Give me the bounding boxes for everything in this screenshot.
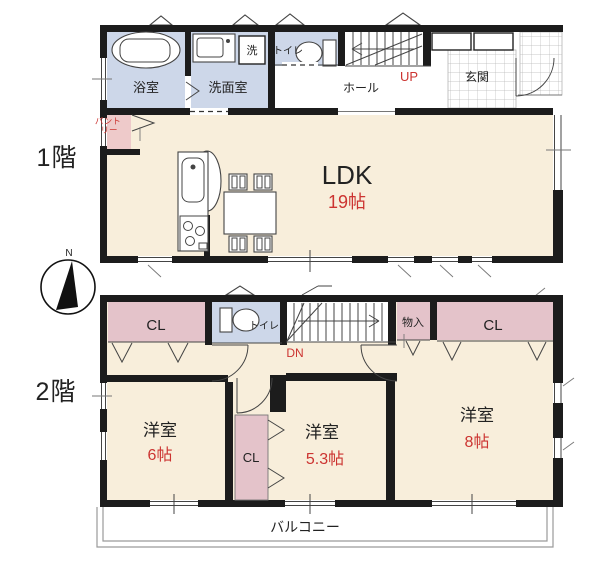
bedroom2-label: 洋室	[305, 423, 339, 442]
compass: N	[41, 248, 95, 314]
toilet2-label: トイレ	[249, 321, 279, 332]
washbasin-fixture	[193, 34, 235, 62]
closet-left-label: CL	[146, 317, 165, 334]
bedroom2-size-label: 5.3帖	[306, 450, 344, 468]
floorplan-image: 1階 浴室 洗面室 洗 トイレ ホール UP 玄関 パント リー LDK 19帖…	[0, 0, 600, 571]
bedroom3-size-label: 8帖	[465, 433, 490, 451]
floorplan-svg: 1階 浴室 洗面室 洗 トイレ ホール UP 玄関 パント リー LDK 19帖…	[0, 0, 600, 571]
storage-label: 物入	[402, 315, 424, 329]
ldk-label: LDK	[322, 160, 373, 190]
bedroom1-size-label: 6帖	[148, 446, 173, 464]
toilet1-label: トイレ	[273, 46, 303, 57]
closet-right-label: CL	[483, 317, 502, 334]
bathtub-fixture	[112, 32, 180, 68]
floor1-label: 1階	[37, 144, 78, 172]
entrance-label: 玄関	[465, 69, 489, 84]
closet-mid-label: CL	[243, 450, 260, 465]
compass-north-label: N	[65, 248, 72, 259]
stairs-down-label: DN	[286, 346, 303, 360]
hall-label: ホール	[343, 81, 379, 95]
laundry-label: 洗	[247, 44, 258, 57]
floor1-plan: 1階 浴室 洗面室 洗 トイレ ホール UP 玄関 パント リー LDK 19帖	[37, 13, 571, 277]
bedroom1-label: 洋室	[143, 421, 177, 440]
washroom-label: 洗面室	[208, 80, 247, 95]
compass-needle	[56, 261, 78, 310]
balcony-label: バルコニー	[270, 519, 340, 535]
bedroom3-label: 洋室	[460, 406, 494, 425]
stairs-up-label: UP	[400, 69, 418, 84]
vent-icon	[226, 286, 254, 295]
floor2-plan: 2階 CL トイレ DN 物入 CL 洋室 6帖 CL 洋室 5.3帖 洋室 8…	[36, 286, 574, 547]
ldk-size-label: 19帖	[328, 192, 366, 212]
bathroom-label: 浴室	[133, 80, 159, 95]
floor2-label: 2階	[36, 378, 77, 406]
vent-icons	[150, 13, 420, 25]
